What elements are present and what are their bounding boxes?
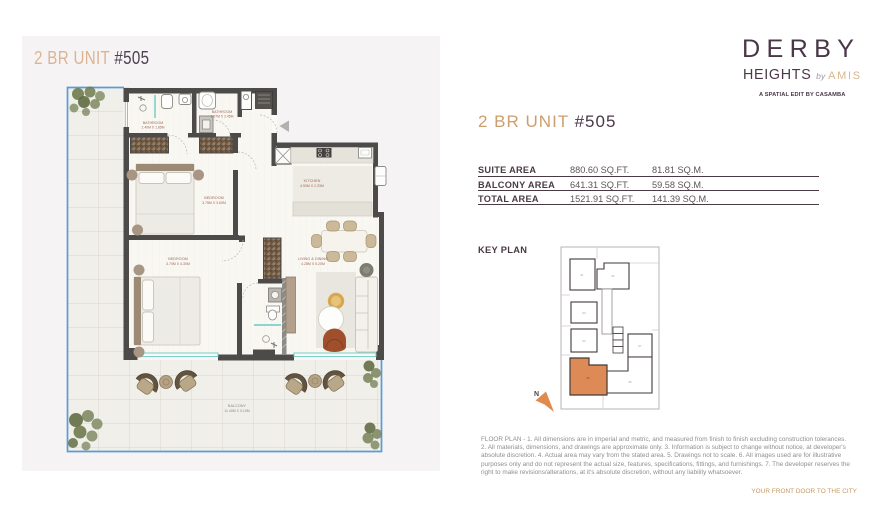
svg-text:02: 02 <box>612 274 615 278</box>
svg-text:BEDROOM: BEDROOM <box>168 257 188 261</box>
svg-text:BATHROOM: BATHROOM <box>212 110 233 114</box>
svg-text:3.75M X 3.60M: 3.75M X 3.60M <box>202 201 226 205</box>
svg-text:BALCONY: BALCONY <box>228 404 247 408</box>
svg-text:3.70M X 4.30M: 3.70M X 4.30M <box>166 262 190 266</box>
svg-text:N: N <box>534 391 539 398</box>
svg-text:BEDROOM: BEDROOM <box>204 196 224 200</box>
svg-text:BATHROOM: BATHROOM <box>143 121 164 125</box>
svg-text:1.67M X 2.45M: 1.67M X 2.45M <box>211 115 234 119</box>
svg-text:05: 05 <box>587 376 590 380</box>
svg-text:04: 04 <box>583 339 586 343</box>
svg-text:KITCHEN: KITCHEN <box>304 179 321 183</box>
svg-text:4.50M X 2.33M: 4.50M X 2.33M <box>300 184 324 188</box>
svg-text:LIVING & DINING: LIVING & DINING <box>298 257 328 261</box>
svg-text:4.28M X 5.20M: 4.28M X 5.20M <box>301 262 325 266</box>
svg-text:11.40M X 3.10M: 11.40M X 3.10M <box>224 409 250 413</box>
svg-text:07: 07 <box>639 344 642 348</box>
svg-text:06: 06 <box>629 380 632 384</box>
svg-text:01: 01 <box>581 273 584 277</box>
svg-text:03: 03 <box>583 311 586 315</box>
svg-text:2.40M X 1.85M: 2.40M X 1.85M <box>142 126 165 130</box>
